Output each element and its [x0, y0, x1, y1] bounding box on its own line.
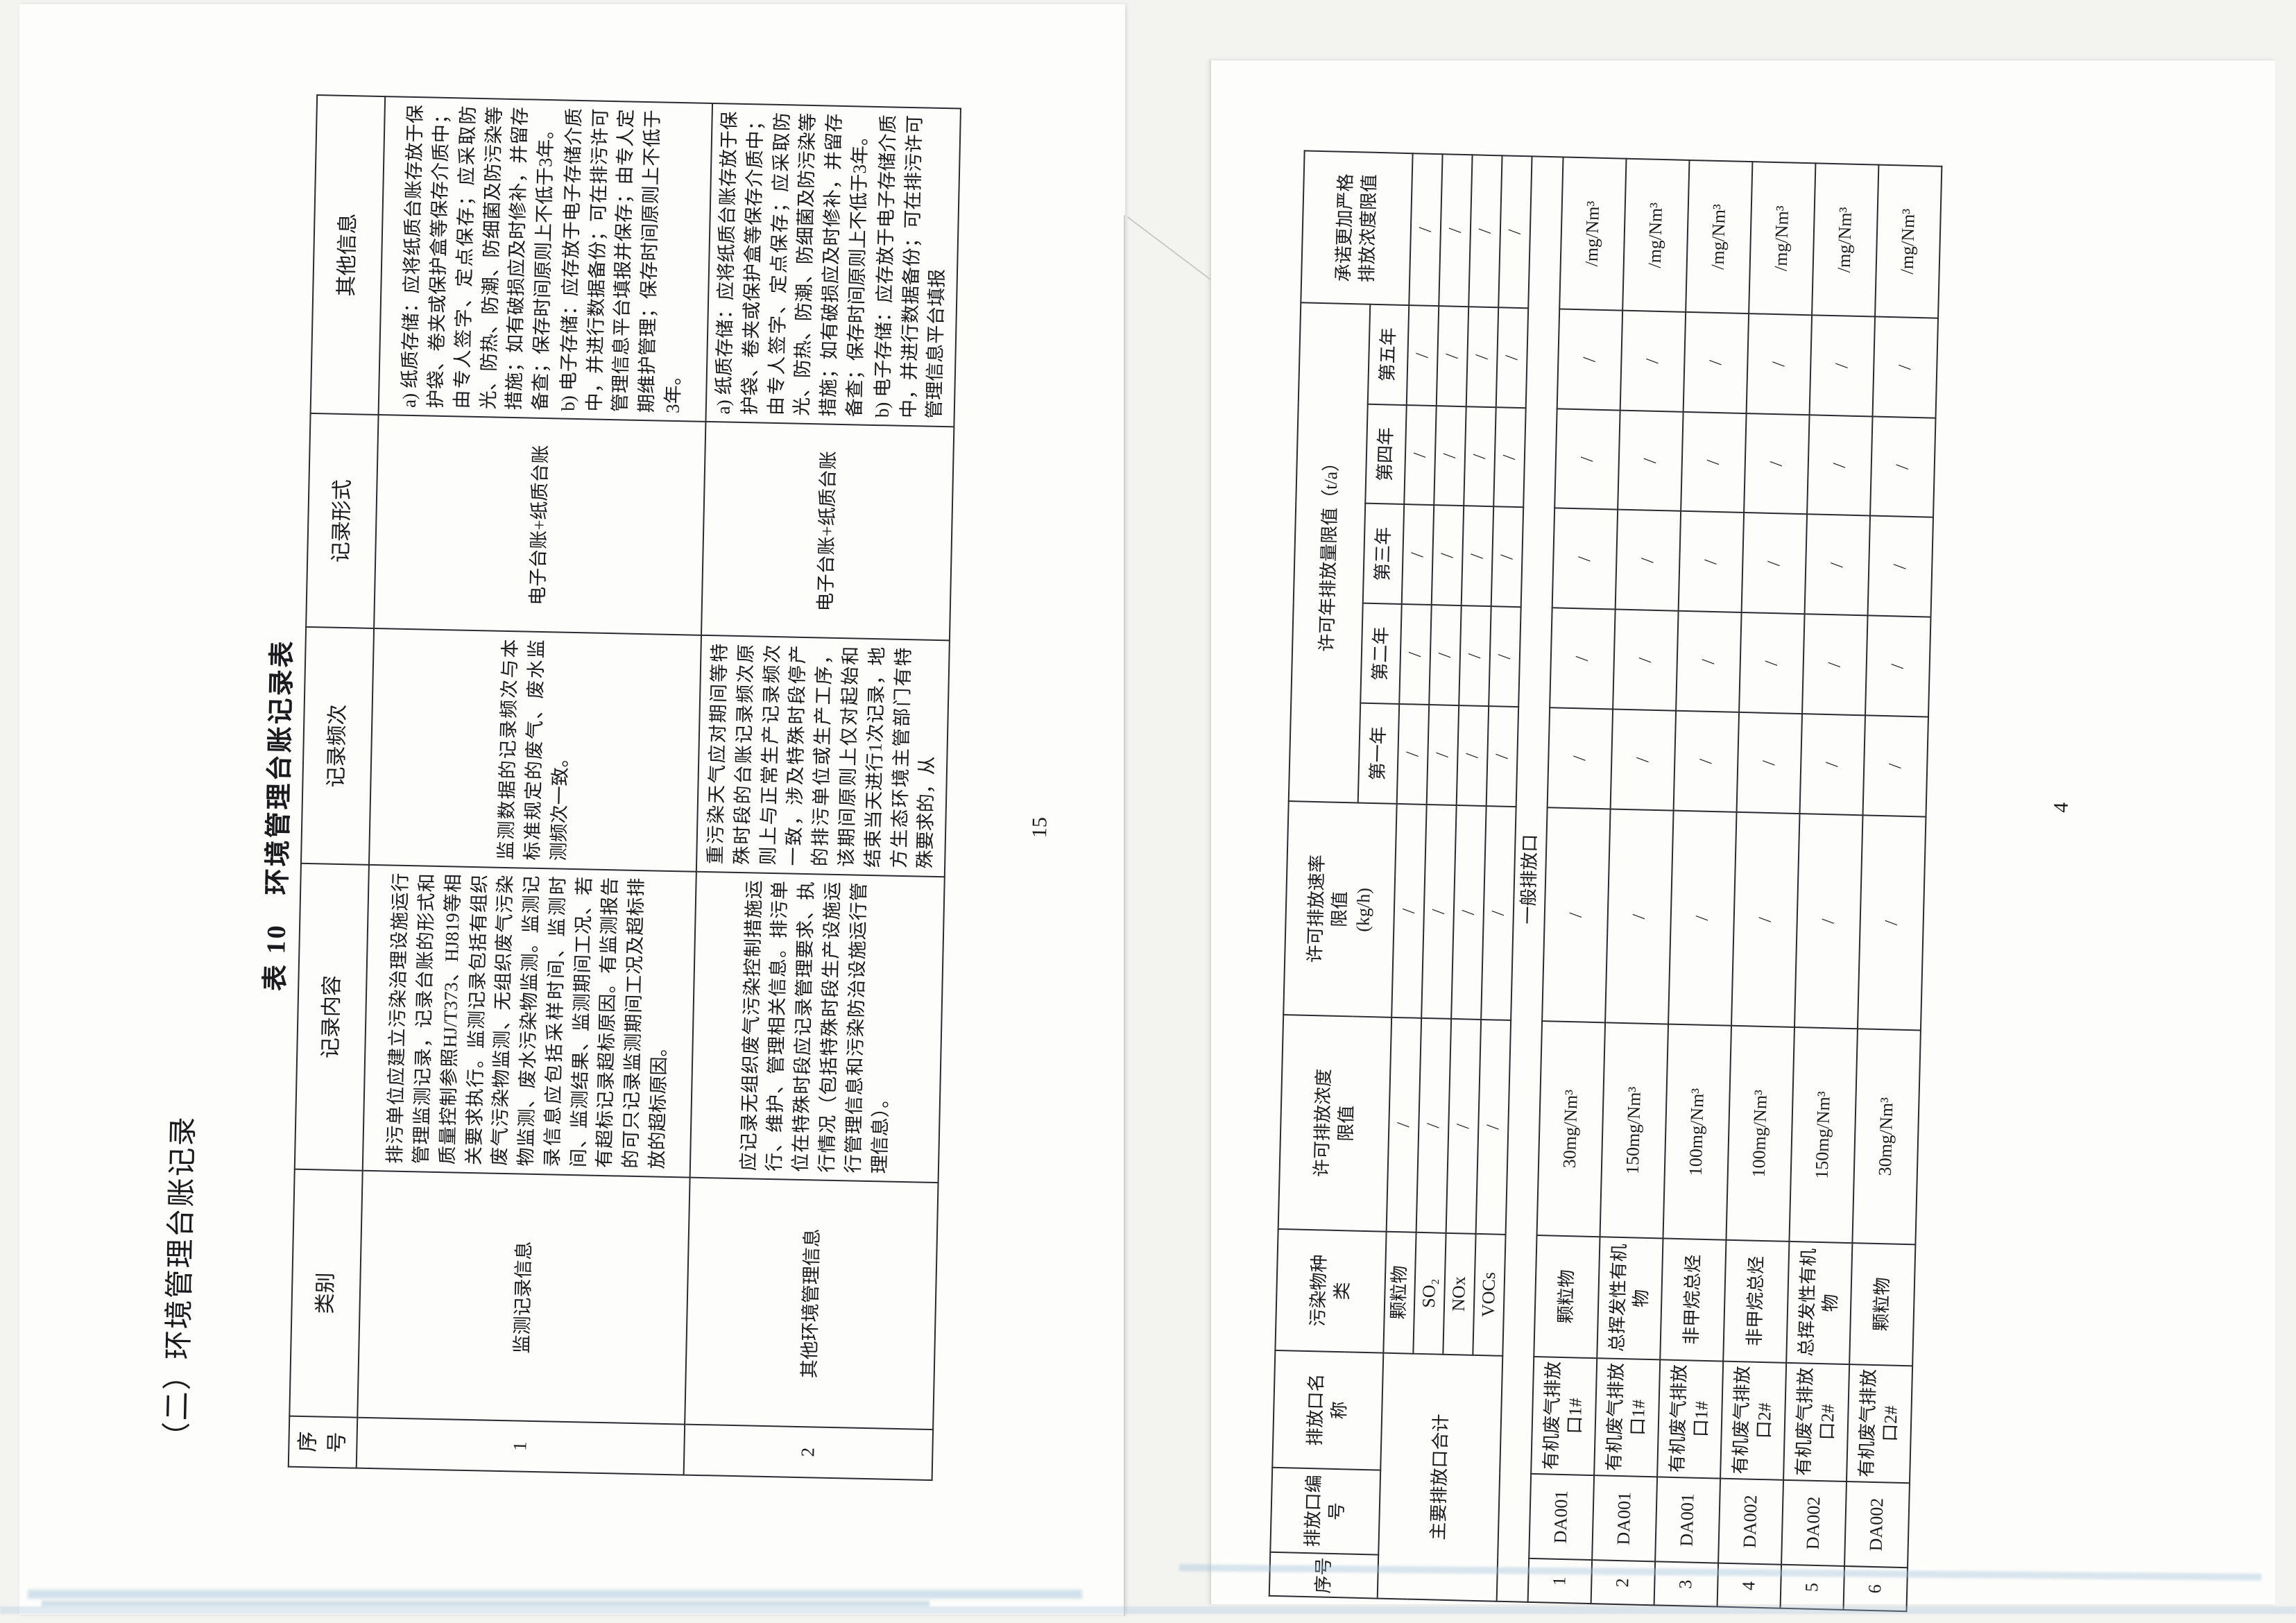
- seq-cell: 6: [1843, 1566, 1908, 1611]
- left-page-number: 15: [1027, 758, 1053, 898]
- left-page: （二）环境管理台账记录 表 10 环境管理台账记录表 序号类别记录内容记录频次记…: [35, 0, 1109, 1623]
- record-form-cell: 电子台账+纸质台账: [701, 422, 954, 641]
- record-content-cell: 应记录无组织废气污染控制措施运行、维护、管理相关信息。排污单位在特殊时段应记录管…: [690, 871, 945, 1182]
- col-header: 序号: [1269, 1552, 1378, 1598]
- year-value-cell: /: [1487, 706, 1519, 807]
- concentration-cell: 100mg/Nm³: [1726, 1026, 1794, 1242]
- year-value-cell: /: [1611, 709, 1676, 810]
- col-header: 污染物种 类: [1275, 1229, 1386, 1353]
- outlet-name-cell: 有机废气排放口1#: [1531, 1357, 1597, 1475]
- year-value-cell: /: [1548, 707, 1613, 809]
- year-header: 第三年: [1363, 504, 1404, 604]
- promise-cell: /mg/Nm³: [1875, 165, 1942, 318]
- year-value-cell: /: [1459, 606, 1491, 706]
- other-info-paragraph: b) 电子存储：应存放于电子存储介质中，并进行数据备份；可在排污许可管理信息平台…: [869, 114, 954, 419]
- outlet-code-cell: DA001: [1655, 1477, 1720, 1563]
- rate-cell: /: [1421, 805, 1457, 1019]
- ledger-col-header: 其他信息: [311, 95, 386, 415]
- year-value-cell: /: [1620, 311, 1686, 412]
- promise-cell: /mg/Nm³: [1812, 163, 1878, 316]
- pollutant-cell: 非甲烷总烃: [1660, 1238, 1726, 1361]
- right-page: 序号排放口编 号排放口名 称污染物种 类许可排放浓度 限值许可排放速率 限值 (…: [1219, 0, 2296, 1623]
- year-value-cell: /: [1747, 314, 1812, 415]
- year-value-cell: /: [1810, 315, 1875, 416]
- ledger-record-table: 序号类别记录内容记录频次记录形式其他信息1监测记录信息排污单位应建立污染治理设施…: [288, 94, 961, 1481]
- rate-cell: /: [1542, 807, 1611, 1023]
- promise-col-header: 承诺更加严格 排放浓度限值: [1301, 151, 1412, 305]
- rate-cell: /: [1668, 810, 1737, 1026]
- year-value-cell: /: [1550, 608, 1615, 710]
- pollutant-cell: NOx: [1443, 1233, 1475, 1355]
- outlet-code-cell: DA002: [1844, 1482, 1910, 1568]
- outlet-name-cell: 有机废气排放口2#: [1720, 1361, 1786, 1479]
- year-value-cell: /: [1407, 305, 1439, 406]
- year-value-cell: /: [1466, 307, 1499, 407]
- year-value-cell: /: [1739, 612, 1804, 714]
- promise-cell: /: [1439, 154, 1472, 307]
- ledger-col-header: 记录形式: [306, 413, 378, 629]
- pollutant-cell: SO₂: [1413, 1232, 1446, 1354]
- seq-cell: 1: [1528, 1558, 1593, 1604]
- ledger-col-header: 记录内容: [295, 864, 369, 1171]
- annual-emission-limit-table: 序号排放口编 号排放口名 称污染物种 类许可排放浓度 限值许可排放速率 限值 (…: [1269, 150, 1943, 1612]
- header-row-1: 序号排放口编 号排放口名 称污染物种 类许可排放浓度 限值许可排放速率 限值 (…: [1269, 151, 1374, 1597]
- promise-cell: /mg/Nm³: [1622, 159, 1689, 312]
- year-value-cell: /: [1427, 705, 1459, 805]
- year-value-cell: /: [1437, 306, 1469, 406]
- category-cell: 其他环境管理信息: [685, 1177, 939, 1429]
- promise-cell: /: [1468, 155, 1502, 307]
- year-value-cell: /: [1397, 704, 1430, 805]
- year-value-cell: /: [1618, 410, 1683, 511]
- year-value-cell: /: [1402, 504, 1434, 605]
- year-value-cell: /: [1491, 507, 1524, 608]
- year-value-cell: /: [1873, 316, 1938, 418]
- record-frequency-cell: 重污染天气应对期间等特殊时段的台账记录频次原则上与正常生产记录频次一致，涉及特殊…: [696, 635, 950, 877]
- ledger-col-header: 序号: [289, 1416, 358, 1468]
- concentration-cell: 150mg/Nm³: [1789, 1027, 1858, 1243]
- annual-group-header: 许可年排放量限值（t/a）: [1289, 302, 1371, 802]
- promise-cell: /: [1409, 153, 1442, 306]
- rate-cell: /: [1794, 814, 1863, 1029]
- other-info-paragraph: a) 纸质存储：应将纸质台账存放于保护袋、卷夹或保护盒等保存介质中；由专人签字、…: [397, 105, 560, 411]
- year-value-cell: /: [1865, 616, 1930, 717]
- year-header: 第二年: [1360, 603, 1401, 704]
- outlet-name-cell: 有机废气排放口2#: [1847, 1364, 1912, 1483]
- concentration-cell: 100mg/Nm³: [1663, 1024, 1732, 1240]
- pollutant-cell: 总挥发性有机物: [1597, 1237, 1663, 1359]
- col-header: 许可排放浓度 限值: [1278, 1015, 1391, 1231]
- year-value-cell: /: [1868, 516, 1933, 617]
- year-value-cell: /: [1737, 712, 1802, 814]
- concentration-cell: /: [1446, 1019, 1482, 1233]
- record-form-cell: 电子台账+纸质台账: [374, 415, 705, 635]
- concentration-cell: 30mg/Nm³: [1537, 1021, 1606, 1237]
- year-value-cell: /: [1862, 715, 1928, 816]
- outlet-name-cell: 有机废气排放口1#: [1594, 1358, 1660, 1477]
- pollutant-cell: VOCs: [1473, 1234, 1505, 1356]
- year-header: 第一年: [1358, 703, 1399, 804]
- seq-cell: 3: [1654, 1562, 1719, 1607]
- outlet-name-cell: 有机废气排放口2#: [1783, 1363, 1849, 1482]
- other-info-cell: a) 纸质存储：应将纸质台账存放于保护袋、卷夹或保护盒等保存介质中；由专人签字、…: [379, 96, 713, 422]
- other-info-paragraph: a) 纸质存储：应将纸质台账存放于保护袋、卷夹或保护盒等保存介质中；由专人签字、…: [711, 111, 875, 418]
- year-value-cell: /: [1554, 409, 1620, 510]
- year-value-cell: /: [1674, 711, 1739, 812]
- year-value-cell: /: [1399, 604, 1432, 705]
- year-value-cell: /: [1432, 506, 1464, 606]
- rate-cell: /: [1858, 815, 1926, 1031]
- outlet-code-cell: DA001: [1592, 1475, 1657, 1562]
- other-info-paragraph: b) 电子存储：应存放于电子存储介质中，并进行数据备份；可在排污许可管理信息平台…: [556, 108, 693, 413]
- rate-cell: /: [1605, 809, 1674, 1024]
- concentration-cell: /: [1416, 1018, 1452, 1233]
- ledger-row: 2其他环境管理信息应记录无组织废气污染控制措施运行、维护、管理相关信息。排污单位…: [684, 103, 961, 1480]
- ledger-col-header: 类别: [289, 1169, 362, 1418]
- year-value-cell: /: [1870, 416, 1935, 517]
- seq-cell: 5: [1781, 1565, 1845, 1610]
- year-value-cell: /: [1616, 510, 1681, 611]
- record-frequency-cell: 监测数据的记录频次与本标准规定的废气、废水监测频次一致。: [369, 628, 701, 871]
- seq-cell: 4: [1717, 1563, 1782, 1608]
- year-value-cell: /: [1557, 309, 1622, 410]
- year-value-cell: /: [1742, 513, 1807, 614]
- year-value-cell: /: [1684, 312, 1749, 413]
- pollutant-cell: 颗粒物: [1383, 1231, 1416, 1353]
- year-value-cell: /: [1464, 406, 1496, 507]
- rate-cell: /: [1451, 805, 1487, 1020]
- promise-cell: /mg/Nm³: [1686, 160, 1752, 314]
- year-header: 第四年: [1365, 404, 1406, 504]
- pollutant-cell: 非甲烷总烃: [1723, 1239, 1789, 1362]
- col-header: 排放口名 称: [1272, 1350, 1383, 1470]
- record-content-cell: 排污单位应建立污染治理设施运行管理监测记录，记录台账的形式和质量控制参照HJ/T…: [363, 865, 696, 1178]
- outlet-code-cell: DA002: [1781, 1479, 1847, 1566]
- year-value-cell: /: [1434, 406, 1466, 506]
- concentration-cell: 30mg/Nm³: [1852, 1029, 1921, 1244]
- year-value-cell: /: [1552, 508, 1618, 610]
- year-value-cell: /: [1679, 511, 1744, 612]
- year-value-cell: /: [1805, 515, 1870, 616]
- ledger-col-header: 记录频次: [301, 627, 374, 864]
- year-value-cell: /: [1802, 614, 1867, 715]
- col-header: 许可排放速率 限值 (kg/h): [1283, 801, 1396, 1017]
- concentration-cell: 150mg/Nm³: [1600, 1023, 1669, 1239]
- scanned-document-spread: （二）环境管理台账记录 表 10 环境管理台账记录表 序号类别记录内容记录频次记…: [0, 0, 2296, 1623]
- concentration-cell: /: [1387, 1017, 1422, 1232]
- year-value-cell: /: [1429, 605, 1462, 705]
- pollutant-cell: 颗粒物: [1849, 1243, 1915, 1366]
- seq-cell: 1: [357, 1418, 685, 1475]
- category-cell: 监测记录信息: [357, 1171, 689, 1425]
- year-value-cell: /: [1493, 407, 1526, 508]
- concentration-cell: /: [1476, 1020, 1511, 1234]
- year-header: 第五年: [1368, 304, 1409, 405]
- year-value-cell: /: [1800, 714, 1865, 815]
- fold-corner-artifact: [1127, 216, 1211, 280]
- year-value-cell: /: [1404, 405, 1437, 506]
- summary-label-cell: 主要排放口合计: [1378, 1352, 1503, 1601]
- rate-cell: /: [1481, 806, 1516, 1020]
- promise-cell: /: [1498, 155, 1532, 308]
- year-value-cell: /: [1496, 307, 1529, 408]
- right-page-number: 4: [2048, 738, 2075, 877]
- outlet-name-cell: 有机废气排放口1#: [1657, 1359, 1723, 1478]
- year-value-cell: /: [1807, 415, 1872, 516]
- other-info-cell: a) 纸质存储：应将纸质台账存放于保护袋、卷夹或保护盒等保存介质中；由专人签字、…: [705, 103, 961, 427]
- seq-cell: 2: [1591, 1561, 1656, 1606]
- outlet-code-cell: DA001: [1529, 1473, 1594, 1560]
- rate-cell: /: [1731, 812, 1800, 1028]
- pollutant-cell: 颗粒物: [1534, 1235, 1600, 1358]
- seq-cell: 2: [684, 1424, 934, 1480]
- year-value-cell: /: [1613, 610, 1678, 711]
- promise-cell: /mg/Nm³: [1749, 162, 1815, 315]
- year-value-cell: /: [1462, 506, 1494, 607]
- year-value-cell: /: [1681, 412, 1746, 513]
- year-value-cell: /: [1489, 606, 1521, 707]
- section-heading: （二）环境管理台账记录: [153, 1115, 202, 1452]
- col-header: 排放口编 号: [1270, 1467, 1380, 1555]
- pollutant-cell: 总挥发性有机物: [1786, 1242, 1852, 1364]
- year-value-cell: /: [1457, 705, 1489, 806]
- promise-cell: /mg/Nm³: [1559, 157, 1626, 310]
- outlet-code-cell: DA002: [1718, 1478, 1783, 1565]
- year-value-cell: /: [1744, 413, 1809, 515]
- rate-cell: /: [1391, 804, 1427, 1018]
- year-value-cell: /: [1676, 611, 1741, 712]
- ledger-row: 1监测记录信息排污单位应建立污染治理设施运行管理监测记录，记录台账的形式和质量控…: [357, 96, 712, 1475]
